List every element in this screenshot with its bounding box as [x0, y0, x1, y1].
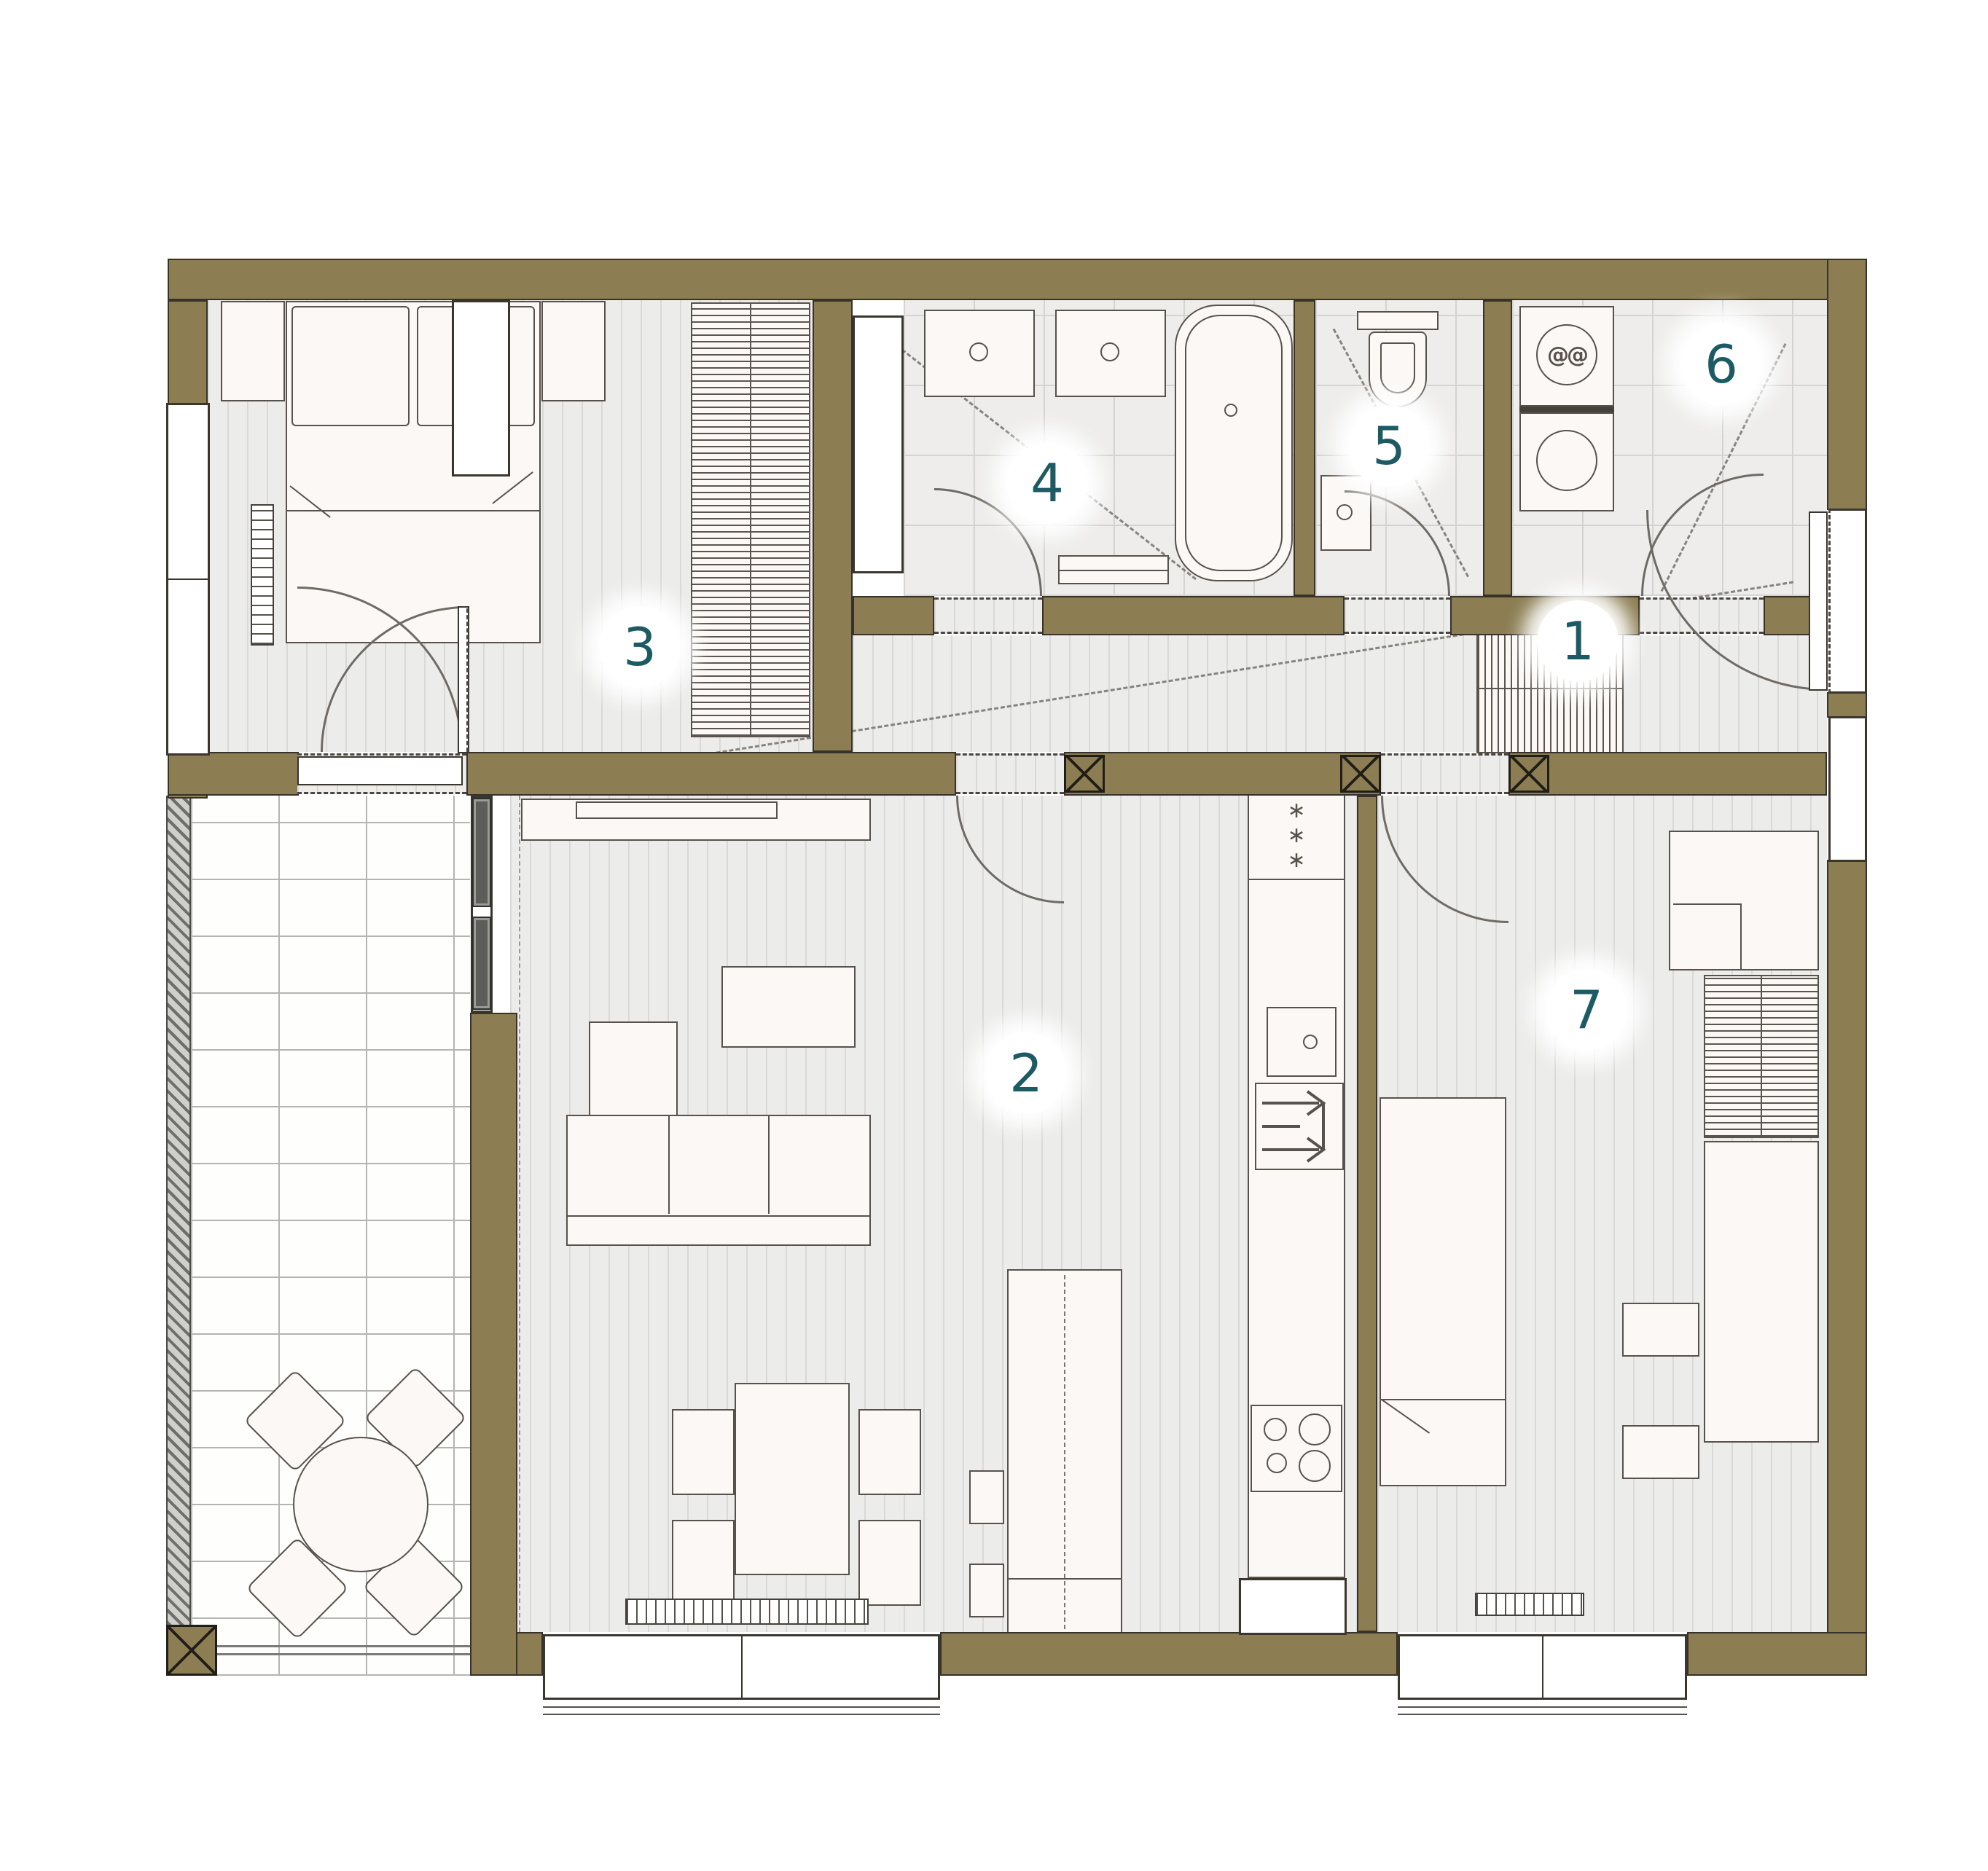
window-room7-bottom: [1398, 1634, 1687, 1700]
wardrobe-bedroom-icon: [691, 302, 810, 737]
entry-door-leaf: [1809, 511, 1828, 691]
terrace-round-table: [293, 1437, 428, 1572]
room-number-5: 5: [1372, 415, 1406, 476]
entry-door-opening: [1828, 509, 1867, 694]
opening-wc-door: [1345, 597, 1450, 634]
kitchen-sink-icon: [1267, 1007, 1337, 1077]
nightstand-right: [541, 301, 606, 401]
wall-column-x-1: [1064, 755, 1105, 793]
opening-room7-door: [1381, 753, 1508, 794]
sink-drain-right: [1100, 342, 1119, 361]
dining-table: [735, 1383, 850, 1575]
room-badge-3: 3: [599, 606, 681, 688]
coffee-table: [721, 966, 856, 1048]
radiator-room7: [1475, 1593, 1584, 1616]
wall-bottom-c: [1687, 1632, 1867, 1676]
wall-corridor-south-3: [1508, 752, 1827, 796]
wall-right-upper: [1827, 259, 1867, 510]
wall-bath-wc: [1294, 300, 1315, 596]
sofa-chaise: [589, 1021, 678, 1118]
wardrobe-room7-icon: [1704, 975, 1819, 1138]
envelope-dash-line: [519, 796, 520, 1632]
room-number-7: 7: [1570, 979, 1603, 1040]
wall-kitchen-divider: [1357, 796, 1377, 1632]
kitchen-bottom-shaft: [1239, 1578, 1347, 1635]
window-corridor-right: [1828, 716, 1867, 862]
wall-corridor-south-2: [1064, 752, 1381, 796]
pillow-left: [291, 306, 410, 426]
dining-chair-1: [672, 1409, 735, 1495]
burner-1: [1264, 1418, 1287, 1441]
opening-living-door: [956, 753, 1064, 794]
bar-stool-2: [969, 1564, 1004, 1617]
side-table-room7-b: [1622, 1425, 1699, 1479]
cooktop-icon: [1251, 1405, 1342, 1492]
fridge-freezer-icon: ∗ ∗ ∗: [1248, 791, 1345, 880]
freezer-stars-glyph: ∗ ∗ ∗: [1287, 799, 1305, 873]
wall-right-mid: [1827, 692, 1867, 718]
terrace-slider-panel-2: [472, 917, 491, 1010]
window-bedroom-left: [166, 403, 210, 756]
bed7-blanket-edge: [1380, 1399, 1506, 1400]
sofa-backrest-line: [568, 1215, 869, 1217]
threshold-bedroom-door: [466, 608, 469, 752]
wall-bed-terrace-a: [168, 752, 299, 796]
wall-corridor-south-1: [466, 752, 956, 796]
burner-4: [1299, 1450, 1331, 1482]
dining-chair-3: [858, 1409, 921, 1495]
window-living-bottom: [543, 1634, 940, 1700]
terrace-door-leaf: [297, 756, 463, 785]
room-number-3: 3: [623, 616, 657, 678]
dishwasher-icon: [1255, 1083, 1344, 1170]
wall-column-x-3: [1508, 755, 1549, 793]
bathtub-drain: [1224, 404, 1237, 417]
radiator-bedroom: [251, 504, 274, 646]
wall-bottom-b: [940, 1632, 1398, 1676]
room-number-1: 1: [1561, 611, 1594, 672]
wall-column-x-2: [1340, 755, 1381, 793]
room-number-6: 6: [1705, 334, 1738, 395]
sill-room7-window: [1398, 1706, 1687, 1715]
dining-chair-2: [672, 1520, 735, 1606]
bar-stool-1: [969, 1470, 1004, 1524]
desk-chair-notch: [1673, 903, 1742, 969]
sofa-seat-divider-2: [768, 1116, 770, 1214]
room-badge-2: 2: [985, 1032, 1067, 1114]
room-badge-1: 1: [1537, 600, 1619, 682]
room-number-4: 4: [1030, 452, 1064, 514]
terrace-edge-bottom: [191, 1645, 470, 1655]
toilet-tank: [1357, 311, 1439, 330]
sink-drain-left: [969, 342, 988, 361]
island-dash-centerline: [1064, 1275, 1065, 1629]
dryer-drum: [1536, 430, 1597, 491]
wall-terrace-living: [470, 1013, 517, 1676]
sofa-seat-divider-1: [668, 1116, 670, 1214]
burner-3: [1267, 1453, 1287, 1473]
terrace-slider-panel-1: [472, 798, 491, 907]
burner-2: [1299, 1413, 1331, 1446]
toilet-bowl-inner: [1380, 342, 1415, 393]
cabinet-room7: [1704, 1141, 1819, 1443]
room-badge-7: 7: [1546, 969, 1627, 1051]
duct-shaft-bathroom: [853, 315, 904, 573]
wall-corridor-north-b: [1042, 596, 1345, 635]
wall-right-lower: [1827, 860, 1867, 1676]
radiator-living: [625, 1599, 869, 1625]
room-badge-5: 5: [1348, 405, 1430, 487]
room-number-2: 2: [1009, 1043, 1043, 1104]
island-division: [1009, 1578, 1121, 1580]
side-table-room7-a: [1622, 1303, 1699, 1357]
duct-shaft-bedroom: [452, 300, 510, 476]
kitchen-sink-drain: [1303, 1035, 1318, 1049]
opening-bath-door: [934, 597, 1042, 634]
sill-living-window: [543, 1706, 940, 1715]
tv-icon: [576, 801, 778, 819]
wall-corridor-north-a: [853, 596, 934, 635]
floor-plan: @@ ∗ ∗ ∗: [0, 0, 1988, 1871]
dining-chair-4: [858, 1520, 921, 1606]
bath-bench-line: [1058, 570, 1169, 571]
wall-top: [168, 259, 1867, 300]
wall-wc-utility: [1483, 300, 1512, 596]
terrace-railing-left: [166, 796, 191, 1676]
terrace-corner-post: [166, 1625, 217, 1676]
washer-drum-icon: @@: [1536, 324, 1597, 385]
sofa: [566, 1115, 871, 1246]
wall-left-upper: [168, 300, 208, 408]
room-badge-4: 4: [1006, 442, 1088, 524]
bed-room7: [1380, 1097, 1506, 1486]
washer-dryer-divider: [1519, 407, 1614, 412]
washer-drum-glyph: @@: [1547, 342, 1586, 368]
room-badge-6: 6: [1680, 323, 1762, 405]
wall-room3-east: [813, 300, 853, 752]
nightstand-left: [221, 301, 285, 401]
bathtub-inner: [1185, 315, 1283, 571]
